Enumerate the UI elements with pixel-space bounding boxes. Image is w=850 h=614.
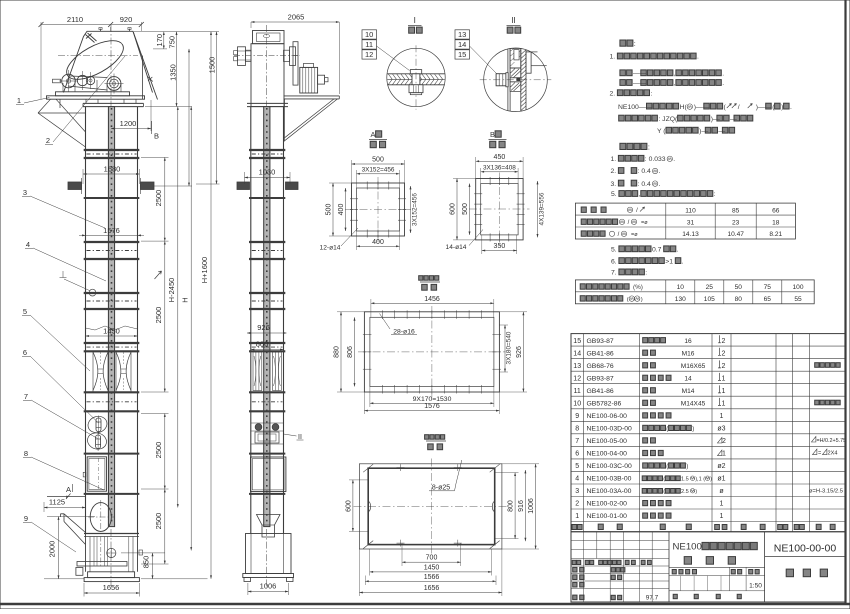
svg-text:8: 8 xyxy=(24,449,28,458)
svg-text:2: 2 xyxy=(575,501,579,508)
svg-text:11: 11 xyxy=(574,388,581,395)
svg-text:GB93-87: GB93-87 xyxy=(587,338,614,345)
svg-text:(: ( xyxy=(627,297,629,303)
svg-text:: JZQ(: : JZQ( xyxy=(658,116,678,123)
svg-text:2065: 2065 xyxy=(288,13,305,22)
svg-text:600: 600 xyxy=(345,500,352,512)
svg-text:13: 13 xyxy=(573,363,581,370)
svg-text:1456: 1456 xyxy=(424,296,440,303)
svg-text:6: 6 xyxy=(575,451,579,458)
svg-text:1576: 1576 xyxy=(424,403,440,410)
svg-text:1.: 1. xyxy=(611,156,617,163)
svg-text:8: 8 xyxy=(575,426,579,433)
svg-text:I: I xyxy=(414,16,416,25)
svg-text:926: 926 xyxy=(516,346,523,358)
svg-text:3X180=540: 3X180=540 xyxy=(506,331,513,364)
svg-text:1: 1 xyxy=(17,96,21,105)
svg-text:10: 10 xyxy=(677,284,685,291)
svg-text:2500: 2500 xyxy=(154,190,163,207)
svg-text:7: 7 xyxy=(24,392,28,401)
svg-text:1.: 1. xyxy=(610,54,616,61)
svg-text:25: 25 xyxy=(706,284,714,291)
svg-text:2X4: 2X4 xyxy=(828,451,838,457)
svg-text:0.7: 0.7 xyxy=(652,247,662,254)
svg-text:66: 66 xyxy=(772,207,780,214)
svg-text:2.: 2. xyxy=(610,90,616,97)
svg-text:9: 9 xyxy=(575,413,579,420)
svg-text:1500: 1500 xyxy=(208,57,217,74)
svg-text:8.21: 8.21 xyxy=(769,231,782,238)
svg-text:1125: 1125 xyxy=(49,498,65,507)
svg-text:B: B xyxy=(490,130,495,139)
svg-text:M16X65: M16X65 xyxy=(681,363,706,370)
svg-text:3.: 3. xyxy=(611,181,617,188)
svg-text:1350: 1350 xyxy=(169,64,178,81)
svg-text:1: 1 xyxy=(720,513,724,520)
svg-text:4: 4 xyxy=(575,476,579,483)
svg-text:3X136=408: 3X136=408 xyxy=(483,164,516,171)
svg-text:M14: M14 xyxy=(682,388,695,395)
svg-text:1: 1 xyxy=(720,413,724,420)
svg-text:1006: 1006 xyxy=(260,582,277,591)
svg-text:10.47: 10.47 xyxy=(727,231,744,238)
svg-text:2: 2 xyxy=(722,338,726,345)
svg-text:50: 50 xyxy=(735,284,743,291)
svg-text:.: . xyxy=(659,168,661,175)
svg-text:H(: H( xyxy=(680,104,688,111)
svg-text:14.13: 14.13 xyxy=(682,231,699,238)
svg-text:): ) xyxy=(710,476,712,482)
svg-text:): ) xyxy=(692,425,694,432)
svg-text:.: . xyxy=(673,156,675,163)
svg-text:5: 5 xyxy=(575,463,579,470)
svg-text:13: 13 xyxy=(458,30,466,39)
svg-text:1450: 1450 xyxy=(424,564,440,571)
svg-text:1656: 1656 xyxy=(103,583,120,592)
svg-text:6.: 6. xyxy=(611,258,617,265)
svg-text:700: 700 xyxy=(426,555,438,562)
svg-text:500: 500 xyxy=(462,203,469,215)
svg-text:GB41-86: GB41-86 xyxy=(587,350,614,357)
svg-text::: : xyxy=(651,90,653,97)
svg-text:GB5782-86: GB5782-86 xyxy=(587,400,622,407)
svg-text:/: / xyxy=(738,104,740,111)
svg-text:4: 4 xyxy=(26,240,30,249)
svg-text:GB93-87: GB93-87 xyxy=(587,375,614,382)
svg-text:1: 1 xyxy=(722,400,726,407)
svg-text:850: 850 xyxy=(142,556,151,569)
svg-text:),1 (: ),1 ( xyxy=(695,476,705,482)
svg-text:1656: 1656 xyxy=(424,585,440,592)
svg-text:5.: 5. xyxy=(611,191,617,198)
svg-text:5: 5 xyxy=(23,307,27,316)
svg-text:1200: 1200 xyxy=(120,119,137,128)
svg-text:NE100-04-00: NE100-04-00 xyxy=(587,451,628,458)
svg-text:23: 23 xyxy=(732,219,740,226)
svg-text:.: . xyxy=(682,258,684,265)
svg-text:600: 600 xyxy=(450,203,457,215)
svg-text:926: 926 xyxy=(257,323,270,332)
svg-text:97.7: 97.7 xyxy=(646,595,659,602)
svg-text::: : xyxy=(645,270,647,277)
svg-text:9X170=1530: 9X170=1530 xyxy=(413,396,452,403)
svg-text:1: 1 xyxy=(722,388,726,395)
svg-text:2110: 2110 xyxy=(67,15,83,24)
svg-text:14: 14 xyxy=(684,375,692,382)
svg-text:2: 2 xyxy=(722,350,726,357)
svg-text:.: . xyxy=(790,104,792,111)
svg-text:H-2450: H-2450 xyxy=(167,278,176,303)
svg-text:4X139=556: 4X139=556 xyxy=(539,192,546,225)
svg-text:800: 800 xyxy=(256,340,269,349)
svg-text:NE100: NE100 xyxy=(673,542,702,553)
svg-text:): ) xyxy=(686,463,688,470)
svg-text:16: 16 xyxy=(684,338,692,345)
svg-text:12: 12 xyxy=(365,50,373,59)
svg-text:9: 9 xyxy=(24,514,28,523)
svg-text:15: 15 xyxy=(573,338,581,345)
svg-text:H: H xyxy=(180,297,189,302)
svg-text:12: 12 xyxy=(573,375,581,382)
svg-text:NE100-06-00: NE100-06-00 xyxy=(587,413,628,420)
svg-text:=ø: =ø xyxy=(641,220,648,226)
svg-text:5.: 5. xyxy=(611,247,617,254)
svg-text:450: 450 xyxy=(494,154,506,161)
svg-text:NE100-03C-00: NE100-03C-00 xyxy=(587,463,633,470)
svg-text:500: 500 xyxy=(372,157,384,164)
svg-text:2500: 2500 xyxy=(154,513,163,530)
svg-text:3X152=456: 3X152=456 xyxy=(412,193,419,226)
svg-text:14: 14 xyxy=(458,40,466,49)
svg-text::: : xyxy=(648,142,650,151)
svg-text:2500: 2500 xyxy=(154,442,163,459)
svg-text:105: 105 xyxy=(704,296,715,303)
svg-text:: 0.033: : 0.033 xyxy=(645,156,666,163)
svg-text:1576: 1576 xyxy=(103,226,120,235)
svg-text:500: 500 xyxy=(326,204,333,216)
svg-text:806: 806 xyxy=(347,346,354,358)
svg-text:2500: 2500 xyxy=(154,307,163,324)
svg-text:1450: 1450 xyxy=(103,327,120,336)
svg-text:3: 3 xyxy=(575,488,579,495)
svg-text:ø: ø xyxy=(719,488,724,495)
svg-text:14: 14 xyxy=(573,350,581,357)
svg-text:65: 65 xyxy=(764,296,772,303)
svg-text:.: . xyxy=(659,181,661,188)
svg-text:12-ø14: 12-ø14 xyxy=(320,245,341,252)
svg-text:2: 2 xyxy=(722,363,726,370)
svg-text:100: 100 xyxy=(792,284,803,291)
svg-text:A: A xyxy=(371,130,376,139)
svg-text:3: 3 xyxy=(23,188,27,197)
svg-text:: 0.4: : 0.4 xyxy=(638,168,651,175)
svg-text::: : xyxy=(634,39,636,48)
svg-text:1: 1 xyxy=(722,375,726,382)
svg-text:GB41-86: GB41-86 xyxy=(587,388,614,395)
svg-text:.: . xyxy=(677,247,679,254)
svg-text:.: . xyxy=(722,71,724,78)
svg-text:1: 1 xyxy=(720,501,724,508)
svg-text:M14X45: M14X45 xyxy=(681,400,706,407)
svg-text:130: 130 xyxy=(675,296,686,303)
svg-text:1030: 1030 xyxy=(259,168,276,177)
svg-text:ø=H-3.15/2.5: ø=H-3.15/2.5 xyxy=(809,489,843,495)
svg-text:15: 15 xyxy=(458,50,466,59)
svg-text:NE100-03D-00: NE100-03D-00 xyxy=(587,426,633,433)
svg-text:3X152=456: 3X152=456 xyxy=(362,166,395,173)
svg-text:ø3: ø3 xyxy=(717,426,725,433)
svg-text:1: 1 xyxy=(722,451,726,458)
svg-text:6: 6 xyxy=(23,348,27,357)
svg-text:55: 55 xyxy=(794,296,802,303)
svg-text:916: 916 xyxy=(518,500,525,512)
svg-text:A: A xyxy=(66,485,71,494)
svg-text:2.5: 2.5 xyxy=(681,489,689,495)
svg-text:1:50: 1:50 xyxy=(749,583,762,590)
svg-text:NE100-01-00: NE100-01-00 xyxy=(587,513,628,520)
svg-text:1566: 1566 xyxy=(424,574,440,581)
svg-text:400: 400 xyxy=(372,239,384,246)
svg-text:=: = xyxy=(818,451,821,457)
svg-text:920: 920 xyxy=(120,15,133,24)
svg-text:85: 85 xyxy=(732,207,740,214)
svg-text:): ) xyxy=(781,104,783,111)
svg-text:7: 7 xyxy=(575,438,579,445)
svg-text:350: 350 xyxy=(494,243,506,250)
svg-text:10: 10 xyxy=(573,400,581,407)
svg-text:GB68-76: GB68-76 xyxy=(587,363,614,370)
svg-text:II: II xyxy=(511,16,515,25)
svg-text:): ) xyxy=(641,297,643,303)
svg-text:80: 80 xyxy=(735,296,743,303)
svg-text:8-ø25: 8-ø25 xyxy=(432,485,450,492)
svg-text:400: 400 xyxy=(338,204,345,216)
svg-text:NE100-03A-00: NE100-03A-00 xyxy=(587,488,632,495)
svg-text:11: 11 xyxy=(365,40,373,49)
svg-text:=H/0.2+5.75: =H/0.2+5.75 xyxy=(817,438,847,444)
svg-text:ø2: ø2 xyxy=(717,463,725,470)
svg-text:750: 750 xyxy=(168,36,177,49)
svg-text:75: 75 xyxy=(764,284,772,291)
svg-text:800: 800 xyxy=(508,500,515,512)
svg-text:B: B xyxy=(154,132,159,141)
svg-text:2: 2 xyxy=(46,136,50,145)
svg-text::: : xyxy=(714,191,716,198)
svg-text:>1: >1 xyxy=(665,258,673,265)
svg-text:880: 880 xyxy=(334,346,341,358)
svg-text:31: 31 xyxy=(687,219,695,226)
svg-text:(%): (%) xyxy=(633,284,643,291)
svg-text:110: 110 xyxy=(685,207,696,214)
svg-text:2: 2 xyxy=(722,438,726,445)
svg-text:H+1600: H+1600 xyxy=(200,257,209,283)
svg-text:ø1: ø1 xyxy=(717,476,725,483)
svg-text:7.: 7. xyxy=(611,270,617,277)
svg-text:.: . xyxy=(722,80,724,87)
svg-text:NE100-00-00: NE100-00-00 xyxy=(774,543,837,555)
svg-text:1680: 1680 xyxy=(104,165,121,174)
svg-text:=ø: =ø xyxy=(631,232,638,238)
svg-text:2.: 2. xyxy=(611,168,617,175)
svg-text:M16: M16 xyxy=(682,350,695,357)
svg-text:2000: 2000 xyxy=(48,541,57,558)
svg-text:Y (: Y ( xyxy=(657,128,666,135)
svg-text:14-ø14: 14-ø14 xyxy=(446,244,467,251)
svg-text:): ) xyxy=(695,489,697,495)
svg-text:NE100-03B-00: NE100-03B-00 xyxy=(587,476,632,483)
svg-text:NE100-02-00: NE100-02-00 xyxy=(587,501,628,508)
svg-text:NE100-05-00: NE100-05-00 xyxy=(587,438,628,445)
svg-text:1006: 1006 xyxy=(528,498,535,514)
svg-text:10: 10 xyxy=(365,30,373,39)
svg-text:.: . xyxy=(697,54,699,61)
svg-text:1: 1 xyxy=(575,513,579,520)
svg-text:: 0.4: : 0.4 xyxy=(638,181,651,188)
svg-text:18: 18 xyxy=(772,219,780,226)
svg-text:170: 170 xyxy=(155,34,164,47)
svg-text:1.5: 1.5 xyxy=(681,476,689,482)
